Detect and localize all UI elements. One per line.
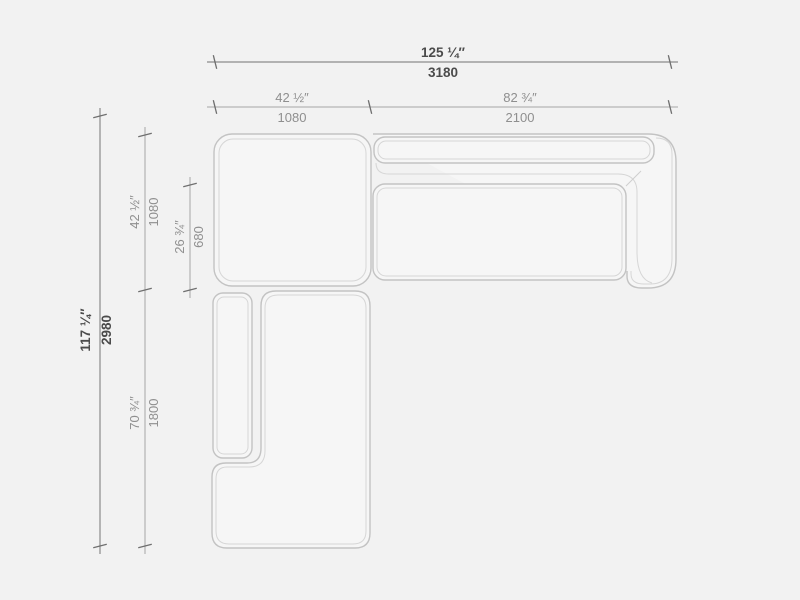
dim-total-depth-inches: 117 ¼″ [78,308,93,352]
dim-corner-depth-inches: 42 ½″ [127,195,142,229]
seat-cushion [373,184,626,280]
corner-module-outline [214,134,371,286]
dim-right-width-inches: 82 ¾″ [503,90,537,105]
right-sofa-module [373,134,676,288]
dim-segment-widths: 42 ½″ 1080 82 ¾″ 2100 [207,90,678,125]
sofa-dimension-drawing: 125 ¼″ 3180 42 ½″ 1080 82 ¾″ 2100 117 ¼″… [0,0,800,600]
dim-total-width: 125 ¼″ 3180 [207,45,678,80]
corner-module [214,134,371,286]
dim-seat-depth-mm: 680 [191,226,206,248]
dim-left-width-mm: 1080 [278,110,307,125]
dim-left-width-inches: 42 ½″ [275,90,309,105]
dim-seat-depth-inches: 26 ¾″ [172,220,187,254]
dim-total-width-inches: 125 ¼″ [421,45,466,60]
dim-chaise-depth-mm: 1800 [146,399,161,428]
dim-corner-depth-mm: 1080 [146,198,161,227]
chaise-module [212,291,370,548]
dim-seat-depth: 26 ¾″ 680 [172,177,206,298]
chaise-armrest [213,293,252,458]
dim-left-depths: 42 ½″ 1080 70 ¾″ 1800 [127,127,161,554]
dimensions: 125 ¼″ 3180 42 ½″ 1080 82 ¾″ 2100 117 ¼″… [78,45,678,554]
dim-total-width-mm: 3180 [428,65,458,80]
sofa-plan [212,134,676,548]
drawing-svg: 125 ¼″ 3180 42 ½″ 1080 82 ¾″ 2100 117 ¼″… [0,0,800,600]
dim-chaise-depth-inches: 70 ¾″ [127,396,142,430]
dim-total-depth: 117 ¼″ 2980 [78,108,114,554]
dim-right-width-mm: 2100 [506,110,535,125]
dim-total-depth-mm: 2980 [99,315,114,345]
